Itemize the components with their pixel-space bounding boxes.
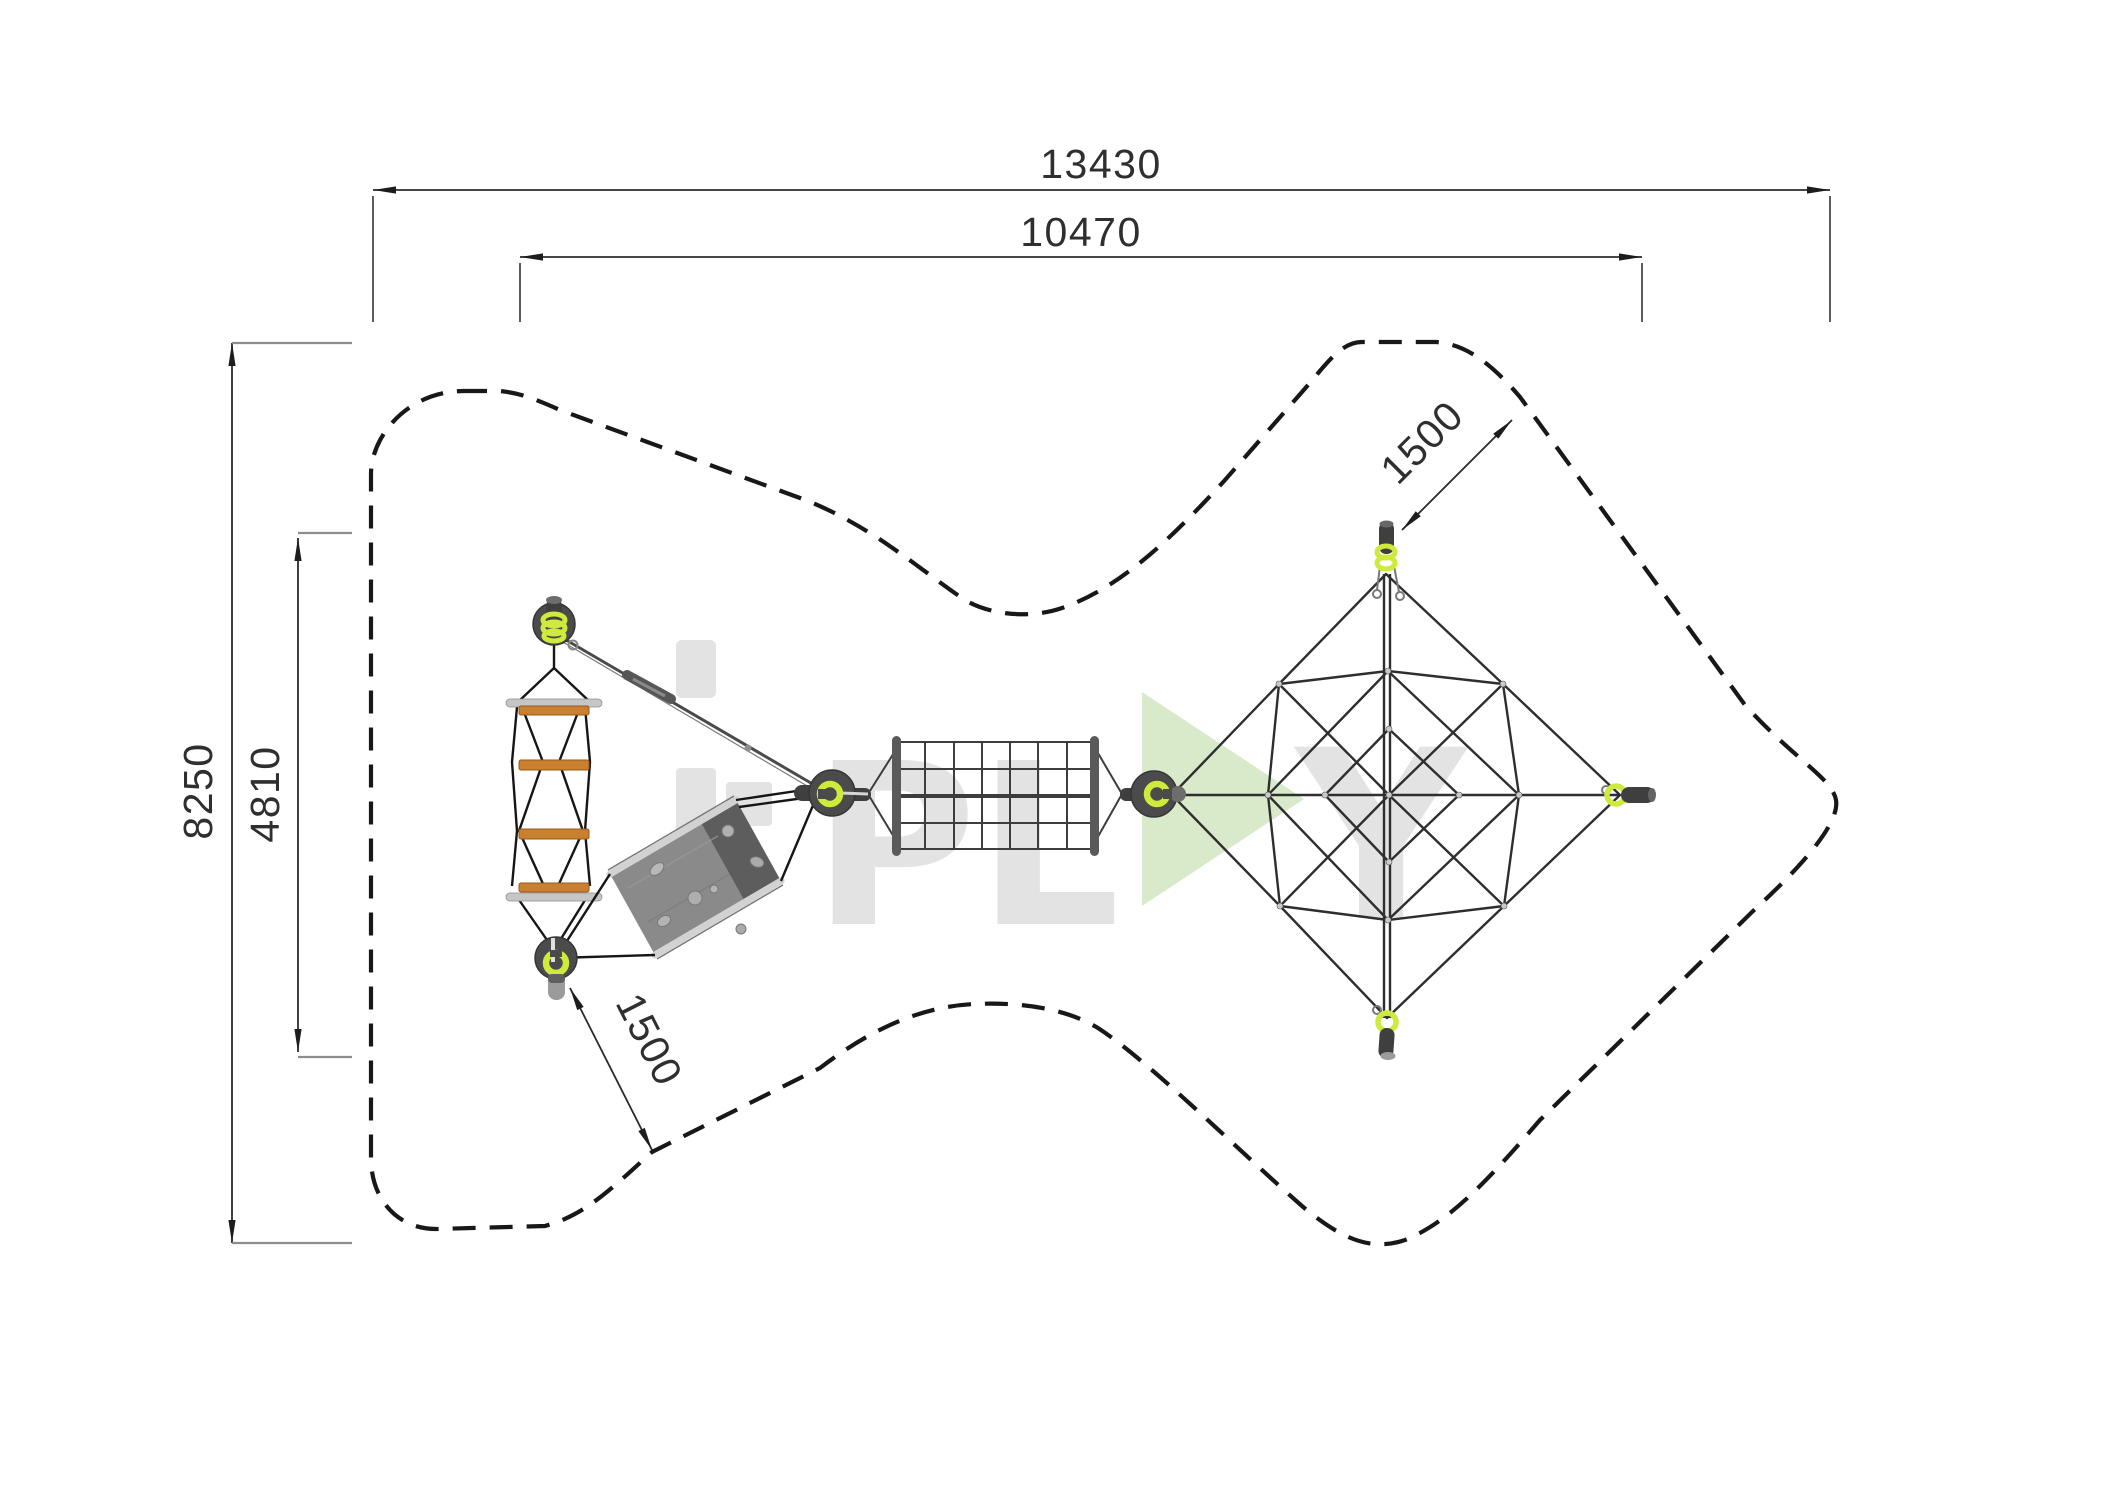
anchor-post-top-left <box>533 596 575 645</box>
dimension-label-total-height: 8250 <box>175 742 221 839</box>
dimension-label-clearance-bottom-left: 1500 <box>607 986 692 1094</box>
dimension-inner-width: 10470 <box>520 209 1642 322</box>
ladder-bottom-bar <box>506 893 602 901</box>
dimension-inner-height: 4810 <box>242 533 352 1057</box>
bridge-frame-bar <box>892 736 901 856</box>
dimension-clearance-bottom-left: 1500 <box>567 986 692 1152</box>
dimension-label-clearance-top-right: 1500 <box>1371 391 1472 492</box>
plan-drawing: 13430 10470 8250 4810 1500 1500 <box>0 0 2105 1488</box>
logo-letter-i-dot <box>676 640 716 698</box>
ladder-rung <box>519 883 589 892</box>
net-post-top <box>1377 521 1395 570</box>
dimension-label-inner-width: 10470 <box>1020 209 1142 255</box>
dimension-clearance-top-right: 1500 <box>1371 391 1514 532</box>
bridge-frame-bar <box>1090 736 1099 856</box>
technical-drawing-canvas: 13430 10470 8250 4810 1500 1500 <box>0 0 2105 1488</box>
ladder-rung <box>519 706 589 715</box>
cable-connector <box>745 745 752 752</box>
shackle-icon <box>1373 590 1381 598</box>
watermark-logo: PL Y <box>676 640 1469 978</box>
ladder-rung <box>519 760 589 770</box>
ladder-rung <box>519 829 589 839</box>
dimension-label-inner-height: 4810 <box>242 745 288 842</box>
shackle-icon <box>1396 592 1404 600</box>
dimension-label-total-width: 13430 <box>1040 141 1162 187</box>
net-post-bottom <box>1378 1013 1396 1060</box>
logo-letters-pl: PL <box>812 716 1120 978</box>
